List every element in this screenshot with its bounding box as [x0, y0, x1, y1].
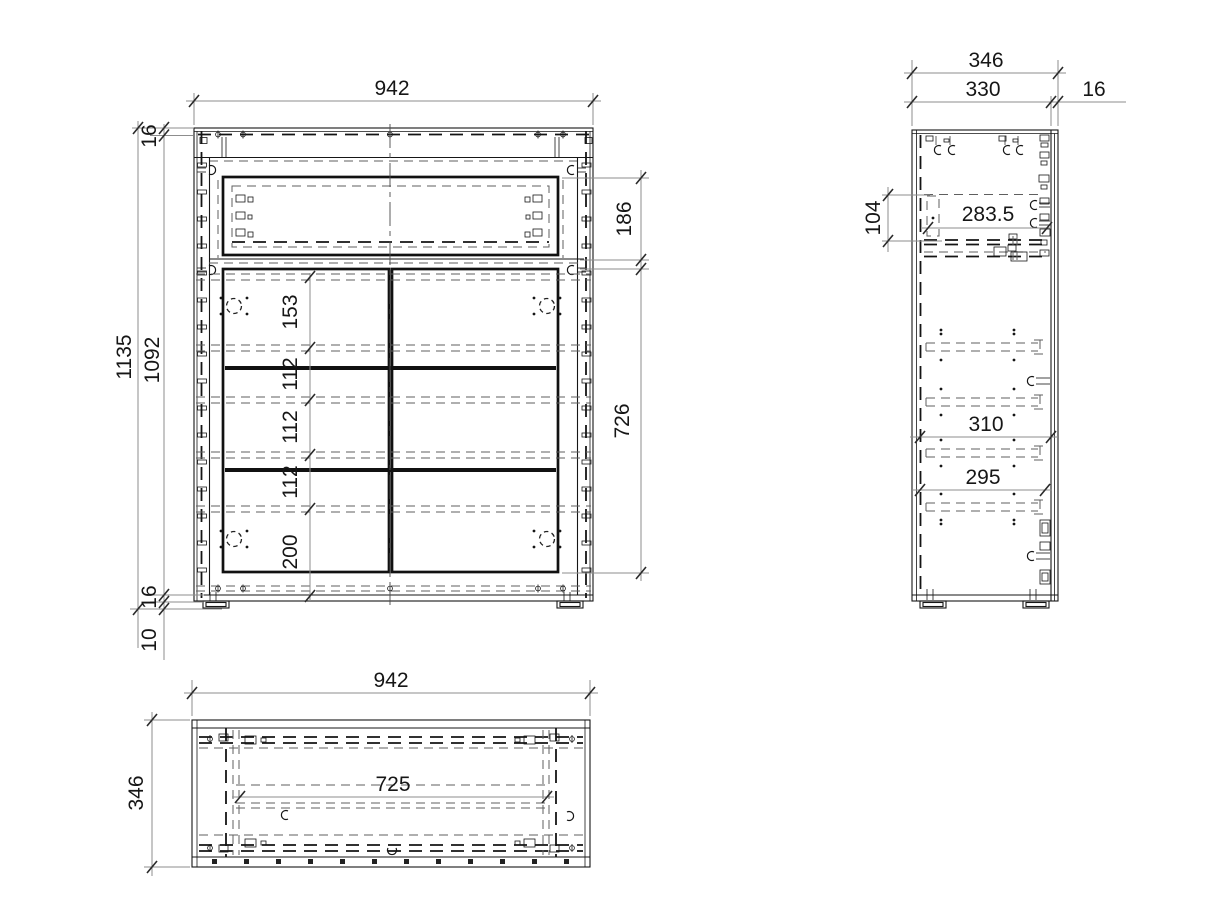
- dim-side-depth-body: 330: [965, 78, 1000, 101]
- front-doors: [223, 269, 558, 572]
- dim-front-height-total: 1135: [113, 334, 136, 379]
- technical-drawing: 942 1135 1092 16 16 10 186 726: [0, 0, 1226, 920]
- dim-side-drawer-depth: 283.5: [962, 203, 1015, 226]
- dim-front-drawer-height: 186: [613, 201, 636, 236]
- dim-front-seg-5: 200: [279, 534, 302, 569]
- front-drawer: [197, 177, 586, 275]
- dim-front-width: 942: [374, 77, 409, 100]
- dim-side-front-thickness: 16: [1082, 78, 1105, 101]
- side-view: 346 330 16 104 283.5 310 295: [862, 49, 1126, 608]
- dim-front-door-height: 726: [611, 403, 634, 438]
- hinge-symbols: [220, 297, 562, 549]
- drawing-page: 942 1135 1092 16 16 10 186 726: [0, 0, 1226, 920]
- front-view: 942 1135 1092 16 16 10 186 726: [113, 77, 649, 660]
- dim-front-seg-2: 112: [279, 357, 302, 390]
- top-view: 942 346 725: [125, 669, 598, 876]
- dim-front-plinth: 10: [138, 628, 161, 651]
- dim-front-seg-4: 112: [279, 465, 302, 498]
- dim-side-drawer-side: 104: [862, 200, 885, 235]
- dim-side-depth-total: 346: [968, 49, 1003, 72]
- dim-top-width: 942: [373, 669, 408, 692]
- dim-side-shelf-upper: 310: [968, 413, 1003, 436]
- dim-front-seg-3: 112: [279, 410, 302, 443]
- dim-top-inner-width: 725: [375, 773, 410, 796]
- dim-front-top-panel: 16: [138, 124, 161, 147]
- dim-side-shelf-lower: 295: [965, 466, 1000, 489]
- dim-front-seg-1: 153: [279, 294, 302, 329]
- dim-front-bottom-panel: 16: [138, 585, 161, 608]
- foot-right: [557, 601, 583, 608]
- side-carcass: [912, 130, 1058, 608]
- dim-front-height-inner: 1092: [141, 337, 164, 384]
- shelf-hole-lines: [196, 274, 591, 593]
- side-dimensions: 346 330 16 104 283.5 310 295: [862, 49, 1126, 496]
- foot-left: [203, 601, 229, 608]
- top-dimensions: 942 346 725: [125, 669, 598, 876]
- dim-top-depth: 346: [125, 775, 148, 810]
